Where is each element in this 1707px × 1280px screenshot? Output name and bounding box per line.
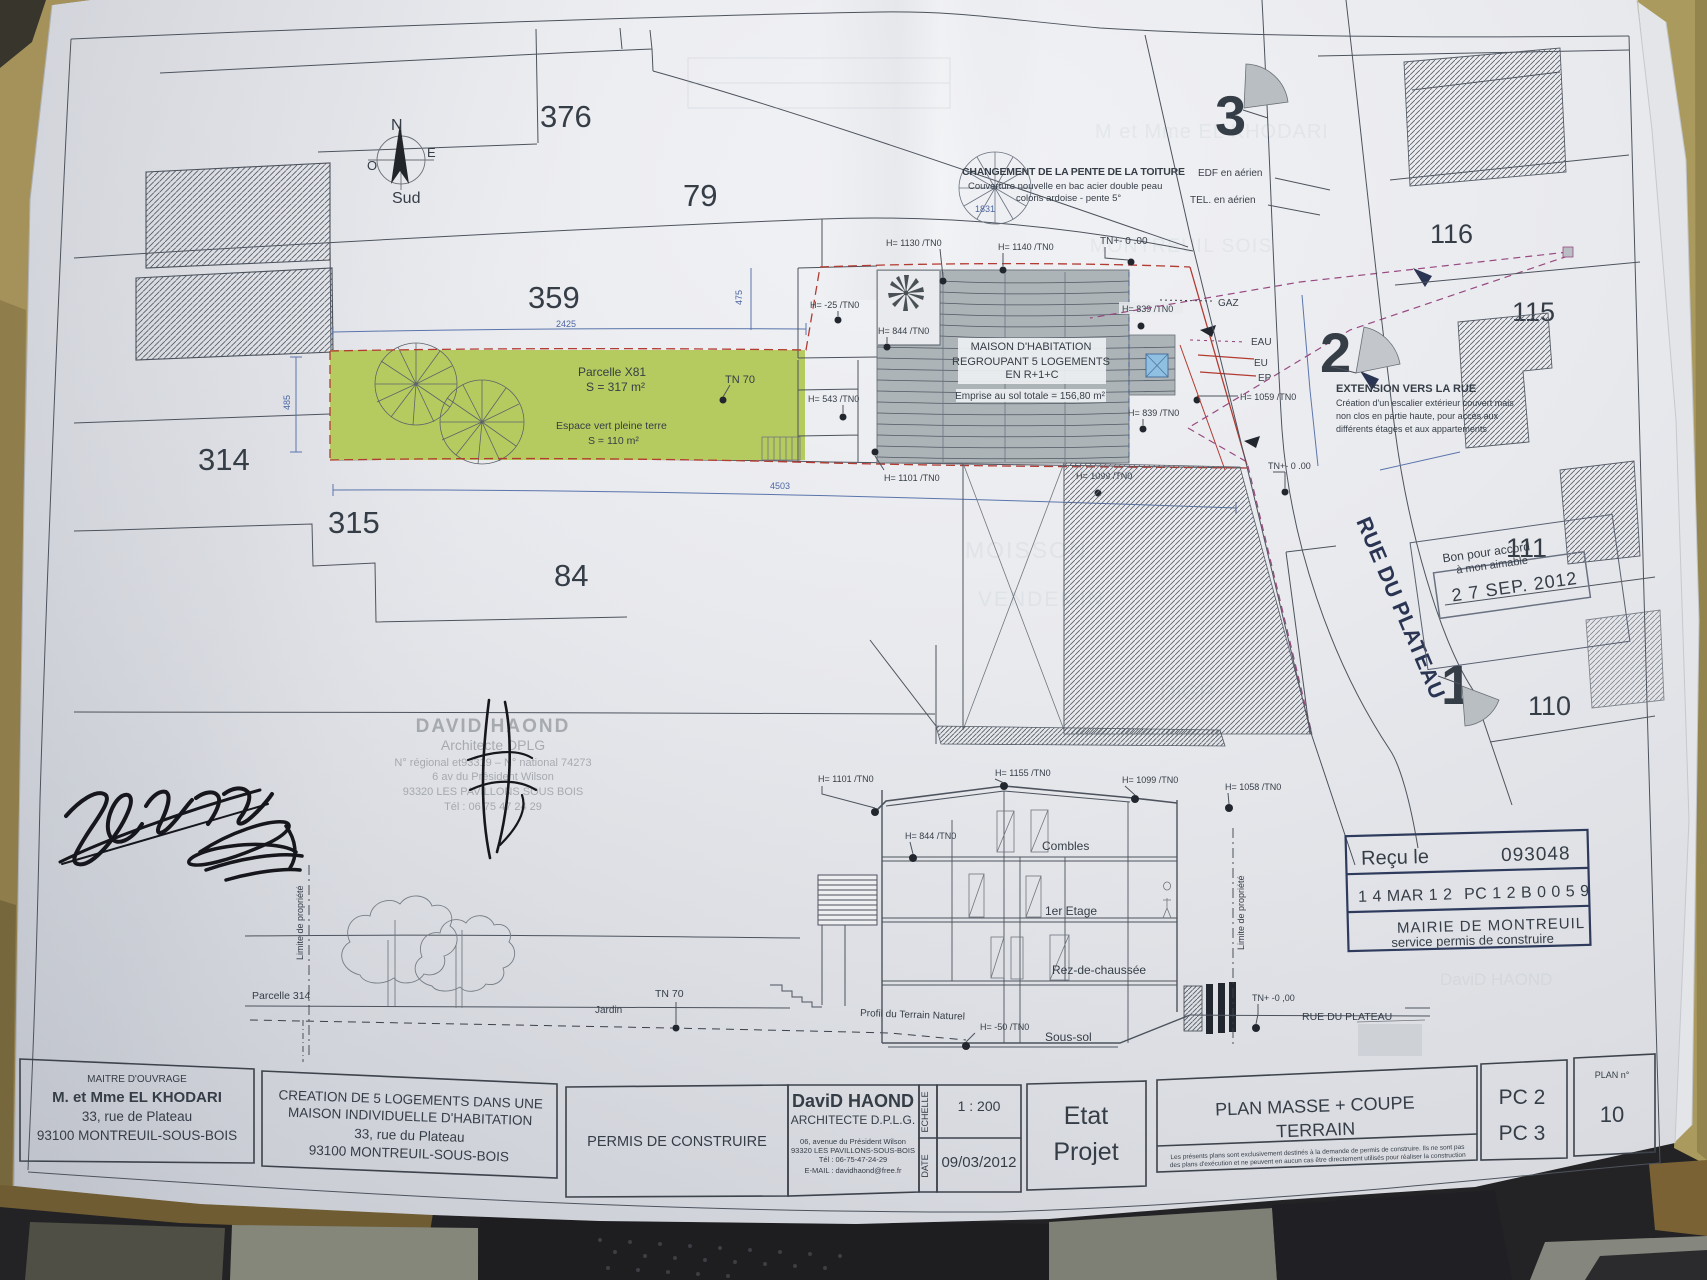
svg-text:359: 359: [528, 280, 580, 315]
svg-text:S = 317 m²: S = 317 m²: [586, 380, 645, 394]
svg-text:116: 116: [1430, 219, 1473, 249]
svg-text:DIGP: DIGP: [1160, 680, 1214, 705]
svg-text:PC 2: PC 2: [1499, 1086, 1546, 1109]
svg-text:EAU: EAU: [1251, 337, 1272, 348]
svg-text:Parcelle 314: Parcelle 314: [252, 990, 311, 1002]
svg-text:H= 844 /TN0: H= 844 /TN0: [878, 326, 929, 336]
svg-text:DaviD HAOND: DaviD HAOND: [1440, 970, 1552, 989]
svg-text:TN 70: TN 70: [725, 374, 755, 386]
svg-text:84: 84: [554, 558, 588, 593]
svg-text:différents étages et aux appar: différents étages et aux appartements: [1336, 424, 1487, 434]
svg-text:475: 475: [734, 290, 744, 305]
svg-text:ECHELLE: ECHELLE: [920, 1091, 930, 1132]
svg-text:non clos en partie haute, pou: non clos en partie haute, pour accès aux: [1336, 411, 1499, 421]
svg-text:TN 70: TN 70: [655, 988, 684, 1000]
svg-text:H= 1059 /TN0: H= 1059 /TN0: [1240, 392, 1296, 402]
svg-text:1 4 MAR 1 2: 1 4 MAR 1 2: [1358, 886, 1453, 905]
svg-text:Reçu le: Reçu le: [1361, 846, 1429, 870]
svg-text:DAVID HAOND: DAVID HAOND: [416, 716, 571, 737]
svg-text:TN+ -0 ,00: TN+ -0 ,00: [1252, 993, 1295, 1003]
svg-text:PLAN n°: PLAN n°: [1595, 1070, 1630, 1080]
svg-text:H= 1101 /TN0: H= 1101 /TN0: [884, 473, 940, 483]
svg-text:93320 LES PAVILLONS SOUS BOIS: 93320 LES PAVILLONS SOUS BOIS: [403, 786, 584, 798]
svg-text:EDF en aérien: EDF en aérien: [1198, 168, 1262, 179]
svg-text:coloris ardoise - pente 5°: coloris ardoise - pente 5°: [1016, 193, 1121, 204]
svg-text:H= 543 /TN0: H= 543 /TN0: [808, 394, 859, 404]
svg-text:ARCHITECTE D.P.L.G.: ARCHITECTE D.P.L.G.: [791, 1113, 915, 1127]
svg-text:Limite de propriété: Limite de propriété: [1236, 875, 1246, 950]
svg-text:315: 315: [328, 505, 380, 540]
svg-text:06, avenue du Président Wilson: 06, avenue du Président Wilson: [800, 1137, 906, 1146]
svg-text:M et Mme EL KHODARI: M et Mme EL KHODARI: [1095, 121, 1329, 143]
svg-text:1 : 200: 1 : 200: [958, 1098, 1001, 1114]
svg-text:Création d'un escalier extérie: Création d'un escalier extérieur couvert…: [1336, 398, 1514, 408]
svg-text:Sous-sol: Sous-sol: [1045, 1030, 1092, 1044]
svg-text:Architecte DPLG: Architecte DPLG: [441, 737, 545, 753]
svg-text:E-MAIL : davidhaond@free.fr: E-MAIL : davidhaond@free.fr: [805, 1166, 902, 1175]
svg-text:EN R+1+C: EN R+1+C: [1005, 369, 1058, 381]
svg-text:4503: 4503: [770, 481, 790, 491]
svg-text:93320 LES PAVILLONS-SOUS-BOIS: 93320 LES PAVILLONS-SOUS-BOIS: [791, 1146, 915, 1155]
svg-text:TEL. en aérien: TEL. en aérien: [1190, 195, 1256, 206]
svg-text:H= 1140 /TN0: H= 1140 /TN0: [998, 242, 1054, 252]
svg-text:Projet: Projet: [1053, 1138, 1118, 1166]
svg-text:1831: 1831: [975, 204, 995, 214]
svg-text:H= 1155 /TN0: H= 1155 /TN0: [995, 768, 1051, 778]
svg-text:MAITRE D'OUVRAGE: MAITRE D'OUVRAGE: [87, 1074, 187, 1085]
svg-text:2425: 2425: [556, 319, 576, 329]
svg-text:DaviD HAOND: DaviD HAOND: [792, 1091, 914, 1111]
svg-text:79: 79: [683, 178, 717, 213]
svg-text:Couverture nouvelle en bac aci: Couverture nouvelle en bac acier double …: [968, 181, 1162, 192]
svg-text:Etat: Etat: [1064, 1102, 1109, 1130]
svg-text:O: O: [367, 158, 377, 173]
svg-text:09/03/2012: 09/03/2012: [941, 1154, 1016, 1171]
svg-text:S = 110 m²: S = 110 m²: [588, 435, 639, 447]
svg-text:H= 839 /TN0: H= 839 /TN0: [1128, 408, 1179, 418]
svg-text:E: E: [427, 145, 436, 160]
svg-text:Tél : 06 75 47 24 29: Tél : 06 75 47 24 29: [444, 801, 542, 813]
svg-text:Espace vert pleine terre: Espace vert pleine terre: [556, 420, 667, 432]
svg-text:H= 1058 /TN0: H= 1058 /TN0: [1225, 782, 1281, 792]
svg-text:93100 MONTREUIL-SOUS-BOIS: 93100 MONTREUIL-SOUS-BOIS: [37, 1128, 237, 1143]
svg-text:Sud: Sud: [392, 190, 420, 207]
svg-text:EU: EU: [1254, 358, 1268, 369]
svg-text:093048: 093048: [1501, 843, 1571, 866]
svg-text:Jardin: Jardin: [595, 1005, 622, 1016]
svg-text:TN+- 0 .00: TN+- 0 .00: [1268, 461, 1311, 471]
svg-text:REGROUPANT 5 LOGEMENTS: REGROUPANT 5 LOGEMENTS: [952, 356, 1110, 368]
svg-text:TERRAIN: TERRAIN: [1276, 1119, 1356, 1142]
svg-text:N° régional et93319 – N° natio: N° régional et93319 – N° national 74273: [394, 757, 591, 769]
svg-text:M. et Mme EL KHODARI: M. et Mme EL KHODARI: [52, 1089, 222, 1106]
svg-text:VENDEMIN: VENDEMIN: [978, 588, 1105, 611]
svg-text:MONTREUIL SOIS: MONTREUIL SOIS: [1090, 236, 1273, 257]
svg-text:H= 844 /TN0: H= 844 /TN0: [905, 831, 956, 841]
svg-text:CHANGEMENT DE LA PENTE DE LA T: CHANGEMENT DE LA PENTE DE LA TOITURE: [962, 166, 1185, 178]
svg-text:MAISON D'HABITATION: MAISON D'HABITATION: [971, 341, 1092, 353]
svg-text:Tél : 06-75-47-24-29: Tél : 06-75-47-24-29: [819, 1155, 887, 1164]
svg-text:Parcelle X81: Parcelle X81: [578, 365, 646, 379]
svg-text:MOISSON: MOISSON: [965, 537, 1088, 563]
svg-text:6 av du Président Wilson: 6 av du Président Wilson: [432, 771, 554, 783]
svg-text:N: N: [391, 117, 403, 134]
svg-text:PC 3: PC 3: [1499, 1122, 1546, 1145]
svg-text:2: 2: [1320, 321, 1351, 384]
svg-text:PC 1 2 B 0 0 5 9: PC 1 2 B 0 0 5 9: [1464, 883, 1590, 903]
svg-text:DATE: DATE: [920, 1154, 930, 1177]
svg-text:Combles: Combles: [1042, 839, 1089, 853]
svg-text:110: 110: [1528, 691, 1571, 721]
svg-text:10: 10: [1600, 1102, 1624, 1127]
svg-text:Rez-de-chaussée: Rez-de-chaussée: [1052, 963, 1146, 977]
svg-text:33, rue de Plateau: 33, rue de Plateau: [82, 1109, 192, 1124]
svg-text:H= -25 /TN0: H= -25 /TN0: [810, 300, 859, 310]
svg-text:H= 1099 /TN0: H= 1099 /TN0: [1122, 775, 1178, 785]
svg-text:EXTENSION VERS LA RUE: EXTENSION VERS LA RUE: [1336, 383, 1476, 395]
svg-text:H= -50 /TN0: H= -50 /TN0: [980, 1022, 1029, 1032]
svg-text:485: 485: [282, 395, 292, 410]
svg-text:H= 1101 /TN0: H= 1101 /TN0: [818, 774, 874, 784]
svg-text:GAZ: GAZ: [1218, 298, 1239, 309]
svg-text:Emprise au sol totale = 156,80: Emprise au sol totale = 156,80 m²: [955, 391, 1105, 402]
svg-text:Limite de propriété: Limite de propriété: [295, 885, 305, 960]
svg-text:H= 1130 /TN0: H= 1130 /TN0: [886, 238, 942, 248]
svg-text:PERMIS DE CONSTRUIRE: PERMIS DE CONSTRUIRE: [587, 1134, 767, 1150]
svg-text:1er Etage: 1er Etage: [1045, 904, 1097, 918]
svg-text:H= 839 /TN0: H= 839 /TN0: [1122, 304, 1173, 314]
svg-text:314: 314: [198, 442, 250, 477]
svg-text:376: 376: [540, 99, 592, 134]
